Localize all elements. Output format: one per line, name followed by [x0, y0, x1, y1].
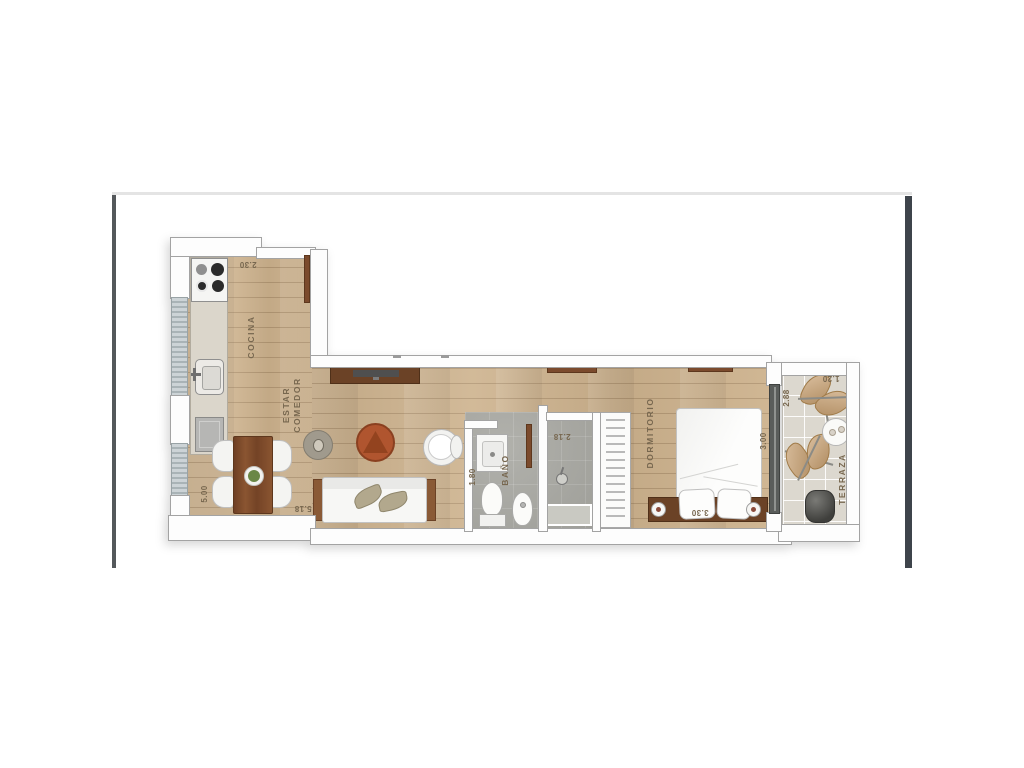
plant-centerpiece — [244, 466, 264, 486]
tv-stand — [373, 377, 379, 380]
pillow — [716, 488, 752, 520]
room-label-dormitorio: DORMITORIO — [646, 397, 655, 468]
sink-basin — [202, 366, 221, 390]
sliding-glass-door — [769, 384, 780, 514]
dim-dormitorio-width: 3.30 — [691, 508, 708, 516]
coffee-table — [356, 423, 395, 462]
dim-ducha-width: 2.18 — [553, 432, 570, 440]
nightstand-lamp — [651, 502, 666, 517]
dim-estar-width: 5.18 — [294, 504, 311, 512]
window — [171, 443, 188, 497]
dining-chair — [270, 476, 292, 508]
stove-cooktop — [191, 258, 228, 302]
coffee-table-pattern — [363, 431, 388, 453]
nightstand-lamp — [746, 502, 761, 517]
bath-right-wall — [592, 412, 601, 532]
faucet-icon — [193, 368, 196, 381]
wall-tick — [441, 355, 449, 358]
bidet — [512, 492, 533, 526]
sofa-side-table — [426, 479, 436, 521]
room-label-comedor: COMEDOR — [293, 377, 302, 433]
left-wall-mid — [170, 395, 190, 445]
planter — [805, 490, 835, 523]
toilet-bowl — [481, 482, 503, 516]
duvet-fold — [703, 476, 757, 487]
closet-shelves — [606, 419, 625, 521]
shower-head-icon — [556, 473, 568, 485]
window — [171, 297, 188, 397]
terrace-right-wall — [846, 362, 860, 540]
burner-icon — [211, 263, 224, 276]
dim-terraza-width: 1.20 — [822, 374, 839, 382]
bidet-drain — [520, 502, 526, 508]
bedroom-terrace-stub-top — [766, 362, 782, 386]
burner-icon — [196, 264, 207, 275]
dim-bano-width: 1.80 — [469, 468, 477, 485]
side-table-lamp — [303, 430, 333, 460]
dining-chair — [212, 440, 234, 472]
dim-estar-height: 5.00 — [201, 485, 209, 502]
entry-door-leaf — [304, 255, 310, 303]
kitchen-top-wall — [170, 237, 262, 257]
sofa — [322, 477, 427, 523]
bathroom-door-leaf — [526, 424, 532, 468]
terrace-bottom-wall — [778, 524, 860, 542]
cup — [838, 426, 845, 433]
apartment-floorplan: 2.30 COCINA ESTAR COMEDOR 5.00 5.18 1.80… — [0, 0, 1024, 768]
lamp-dot — [656, 507, 661, 512]
plant-leaves — [248, 470, 260, 482]
floorplan-image: 2.30 COCINA ESTAR COMEDOR 5.00 5.18 1.80… — [0, 0, 1024, 768]
tv-console — [330, 366, 420, 384]
burner-icon — [212, 280, 224, 292]
cup — [829, 429, 836, 436]
lamp-center — [313, 439, 324, 452]
bath-top-wall — [464, 420, 498, 429]
wardrobe-closet — [600, 412, 631, 528]
living-top-wall — [310, 355, 772, 368]
dim-dormitorio-depth: 3.00 — [760, 432, 768, 449]
dim-terraza-height: 2.88 — [783, 389, 791, 406]
tv — [353, 370, 399, 377]
dining-chair — [212, 476, 234, 508]
bath-mid-wall — [538, 405, 548, 532]
armchair-ottoman — [450, 435, 463, 459]
toilet-tank — [479, 514, 506, 527]
kitchen-sink — [195, 359, 224, 395]
room-label-estar: ESTAR — [282, 387, 291, 423]
room-label-terraza: TERRAZA — [838, 453, 847, 505]
bottom-wall-left — [168, 515, 316, 541]
double-bed — [676, 408, 762, 500]
faucet-icon — [490, 452, 495, 457]
bedroom-terrace-stub-bottom — [766, 512, 782, 532]
glass-line — [774, 387, 776, 511]
dining-chair — [270, 440, 292, 472]
shower-tray — [546, 504, 592, 526]
dim-cocina-width: 2.30 — [239, 260, 256, 268]
kitchen-right-wall — [310, 249, 328, 368]
wall-tick — [393, 355, 401, 358]
lamp-dot — [751, 507, 756, 512]
room-label-cocina: COCINA — [247, 315, 256, 358]
dining-table — [233, 436, 273, 514]
room-label-bano: BAÑO — [501, 454, 510, 485]
burner-icon — [196, 280, 208, 292]
toilet — [479, 482, 506, 528]
bottom-wall-right — [310, 528, 792, 545]
